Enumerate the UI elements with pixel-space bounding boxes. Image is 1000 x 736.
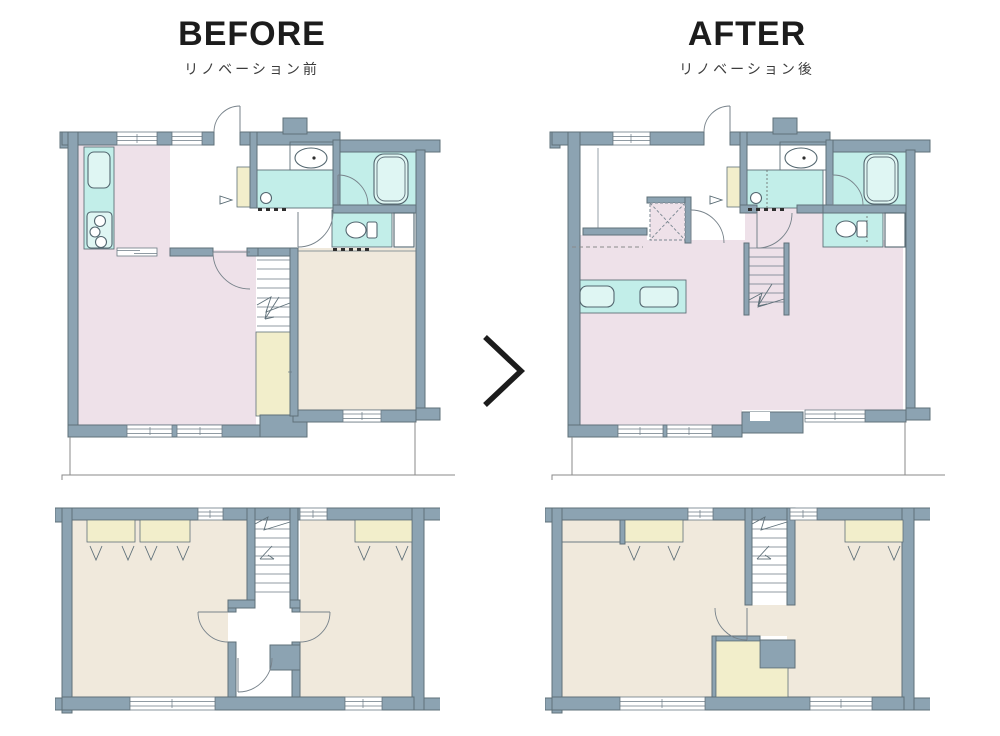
before-subtitle: リノベーション前 bbox=[52, 59, 452, 79]
before-upper-floor-plan bbox=[55, 88, 455, 480]
before-lower-floor-plan bbox=[55, 500, 440, 718]
floors bbox=[70, 140, 416, 427]
bathtub bbox=[374, 154, 408, 204]
floors bbox=[572, 142, 906, 425]
after-title: AFTER bbox=[547, 16, 947, 53]
after-upper-floor-plan bbox=[545, 88, 945, 480]
duct-shaft bbox=[270, 645, 300, 670]
washbasin bbox=[290, 142, 333, 170]
stairs bbox=[752, 517, 787, 592]
before-after-floorplan-comparison: BEFORE リノベーション前 AFTER リノベーション後 bbox=[0, 0, 1000, 736]
washbasin bbox=[780, 142, 826, 170]
before-header: BEFORE リノベーション前 bbox=[52, 16, 452, 79]
after-header: AFTER リノベーション後 bbox=[547, 16, 947, 79]
chevron-right-icon bbox=[480, 333, 526, 409]
tatami-storage-box bbox=[647, 197, 691, 243]
after-subtitle: リノベーション後 bbox=[547, 59, 947, 79]
stairs bbox=[255, 517, 290, 592]
before-title: BEFORE bbox=[52, 16, 452, 53]
bathtub bbox=[864, 154, 898, 204]
after-lower-floor-plan bbox=[545, 500, 930, 718]
